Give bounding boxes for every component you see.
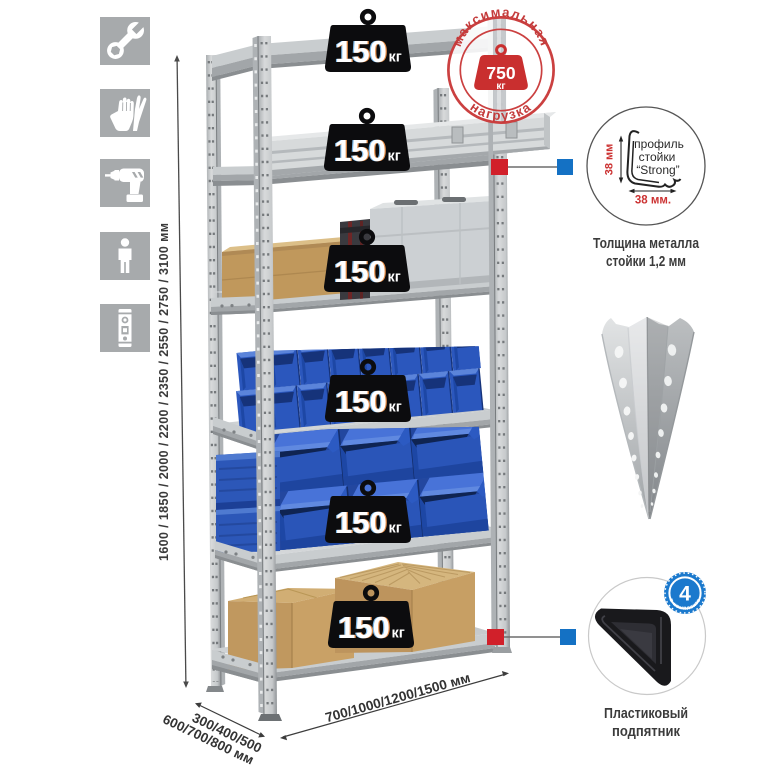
svg-text:кг: кг	[496, 81, 505, 92]
svg-text:150: 150	[335, 34, 387, 69]
svg-text:подпятник: подпятник	[612, 723, 680, 740]
svg-text:кг: кг	[392, 626, 405, 642]
svg-text:Толщина металла: Толщина металла	[593, 235, 700, 252]
svg-text:150: 150	[335, 505, 387, 540]
svg-text:кг: кг	[388, 270, 401, 286]
svg-text:стойки: стойки	[639, 150, 676, 164]
svg-text:750: 750	[486, 63, 515, 83]
svg-text:150: 150	[335, 384, 387, 419]
svg-text:кг: кг	[389, 400, 402, 416]
svg-text:38 мм: 38 мм	[604, 144, 616, 176]
svg-text:кг: кг	[389, 521, 402, 537]
svg-text:кг: кг	[389, 50, 402, 66]
svg-text:150: 150	[338, 610, 390, 645]
svg-text:700/1000/1200/1500 мм: 700/1000/1200/1500 мм	[324, 670, 472, 725]
svg-text:Пластиковый: Пластиковый	[604, 705, 688, 722]
svg-text:150: 150	[334, 254, 386, 289]
svg-text:кг: кг	[388, 149, 401, 165]
svg-text:стойки 1,2 мм: стойки 1,2 мм	[606, 253, 686, 270]
svg-text:профиль: профиль	[634, 137, 684, 151]
svg-text:38 мм.: 38 мм.	[635, 195, 671, 207]
svg-text:4: 4	[679, 583, 691, 606]
svg-text:150: 150	[334, 133, 386, 168]
svg-text:“Strong”: “Strong”	[636, 163, 679, 177]
svg-text:1600 / 1850 / 2000 / 2200 / 23: 1600 / 1850 / 2000 / 2200 / 2350 / 2550 …	[157, 223, 171, 561]
